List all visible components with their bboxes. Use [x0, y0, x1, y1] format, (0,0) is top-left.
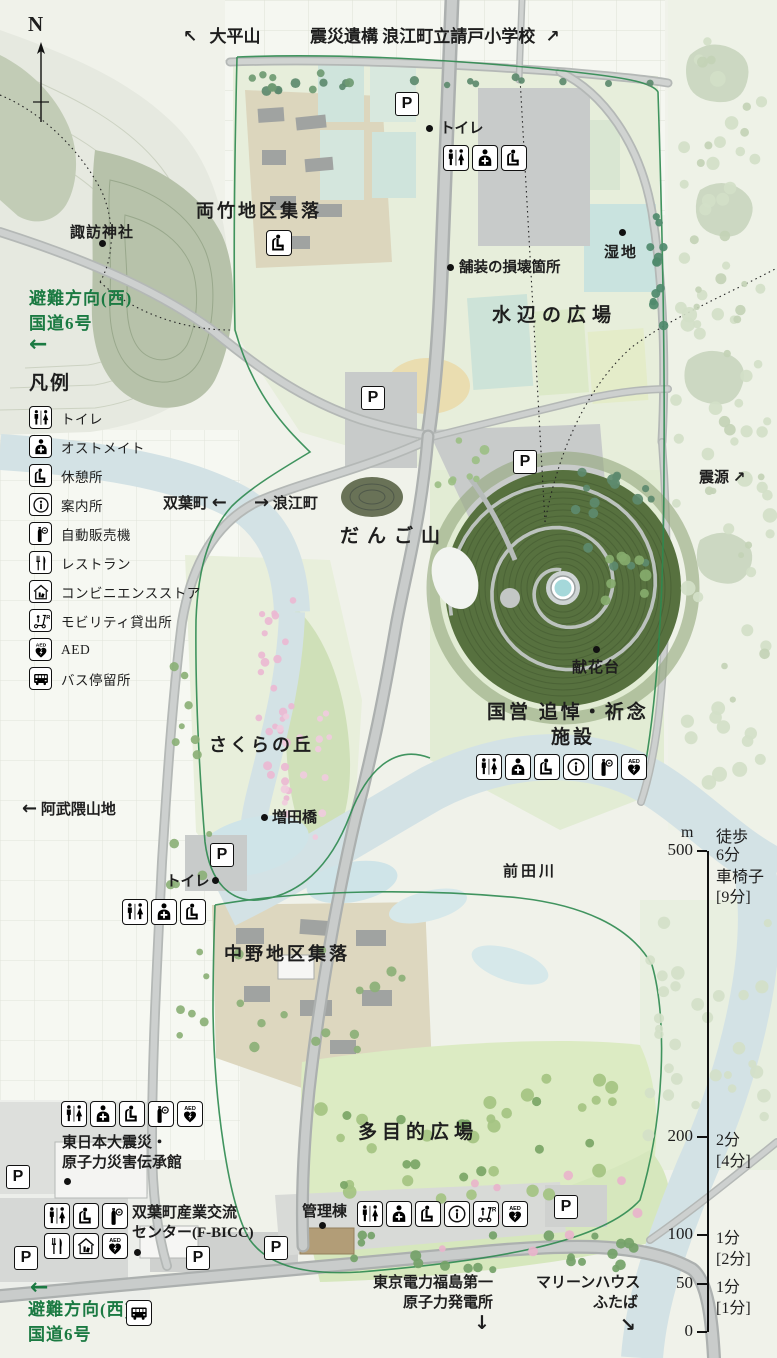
label-toilet-top: トイレ: [440, 117, 484, 138]
scale-tick: [697, 1283, 707, 1285]
ostomate-icon: [151, 899, 177, 925]
vending-icon: [29, 522, 52, 545]
parking-marker: P: [513, 450, 537, 474]
arrow-left-icon: ←: [212, 492, 227, 513]
label-pavement-damage: 舗装の損壊箇所: [459, 256, 561, 277]
legend: 凡例 トイレ オストメイト 休憩所 案内所 自動販売機 レストラン コンビニエン…: [29, 368, 201, 693]
bus-icon: [29, 667, 52, 690]
rest-icon: [534, 754, 560, 780]
evacuation-direction-top: 避難方向(西) 国道6号 ←: [29, 287, 132, 354]
legend-item-restaurant: レストラン: [29, 548, 201, 577]
aed-icon: [102, 1233, 128, 1259]
convenience-icon: [73, 1233, 99, 1259]
facility-icons-denshokan: [61, 1101, 203, 1127]
mobility-icon: [29, 609, 52, 632]
scale-wheelchair-200: [4分]: [716, 1147, 751, 1171]
restaurant-icon: [29, 551, 52, 574]
scale-axis: [707, 851, 709, 1332]
ostomate-icon: [386, 1201, 412, 1227]
label-suwa-shrine: 諏訪神社: [70, 221, 134, 242]
poi-dot-suwa: [99, 240, 106, 247]
scale-tick: [697, 1234, 707, 1236]
direction-epicenter: 震源 ↗: [699, 466, 745, 487]
parking-marker: P: [186, 1246, 210, 1270]
label-dango-yama: だんご山: [340, 521, 448, 548]
aed-icon: [621, 754, 647, 780]
legend-item-vending: 自動販売機: [29, 519, 201, 548]
parking-marker: P: [264, 1236, 288, 1260]
label-kanritou: 管理棟: [302, 1200, 347, 1221]
legend-item-aed: AED: [29, 635, 201, 664]
vending-icon: [148, 1101, 174, 1127]
facility-icons-fbicc-row2: [44, 1233, 128, 1259]
label-waterside-plaza: 水辺の広場: [492, 300, 617, 327]
poi-dot-denshokan: [64, 1178, 71, 1185]
toilet-icon: [357, 1201, 383, 1227]
arrow-left-icon: ←: [22, 798, 37, 819]
parking-marker: P: [554, 1195, 578, 1219]
direction-ohirayama: ↖ 大平山: [183, 22, 261, 47]
toilet-icon: [61, 1101, 87, 1127]
arrow-right-icon: →: [254, 492, 269, 513]
direction-futaba: 双葉町 ←: [163, 492, 227, 513]
ostomate-icon: [90, 1101, 116, 1127]
direction-tepco: 東京電力福島第一 原子力発電所: [368, 1273, 493, 1314]
poi-dot-fbicc: [134, 1249, 141, 1256]
ostomate-icon: [505, 754, 531, 780]
bus-stop-marker: [126, 1300, 152, 1326]
vending-icon: [102, 1203, 128, 1229]
rest-icon: [180, 899, 206, 925]
compass-label: N: [28, 12, 43, 37]
convenience-icon: [29, 580, 52, 603]
scale-value-0: 0: [653, 1321, 693, 1341]
scale-wheelchair-100: [2分]: [716, 1245, 751, 1269]
label-flower-stand: 献花台: [572, 656, 620, 677]
evacuation-direction-bottom: 避難方向(西) 国道6号: [28, 1298, 131, 1347]
rest-icon: [73, 1203, 99, 1229]
bus-icon: [126, 1300, 152, 1326]
arrow-down-right-icon: ↘: [620, 1314, 636, 1336]
arrow-left-icon: ←: [29, 336, 132, 354]
poi-dot-wetland: [619, 229, 626, 236]
scale-tick: [697, 1331, 707, 1333]
arrow-down-icon: ↓: [474, 1312, 490, 1334]
rest-icon: [266, 230, 292, 256]
label-toilet-mid: トイレ: [166, 870, 210, 891]
label-denshokan: 東日本大震災・ 原子力災害伝承館: [62, 1133, 182, 1174]
legend-item-bus: バス停留所: [29, 664, 201, 693]
legend-item-convenience: コンビニエンスストア: [29, 577, 201, 606]
toilet-icon: [122, 899, 148, 925]
scale-value-100: 100: [653, 1224, 693, 1244]
scale-wheelchair-50: [1分]: [716, 1294, 751, 1318]
park-map: N ↖ 大平山 震災遺構 浪江町立請戸小学校 ↗ 諏訪神社 避難方向(西) 国道…: [0, 0, 777, 1358]
legend-item-toilet: トイレ: [29, 403, 201, 432]
direction-ukedo-school: 震災遺構 浪江町立請戸小学校 ↗: [310, 22, 560, 47]
direction-marine-house: マリーンハウス ふたば: [536, 1273, 638, 1314]
label-national-memorial-line1: 国営 追悼・祈念: [487, 697, 649, 724]
legend-item-rest: 休憩所: [29, 461, 201, 490]
aed-icon: [29, 638, 52, 661]
scale-tick: [697, 1136, 707, 1138]
facility-icons-sakura: [122, 899, 206, 925]
scale-walk-500: 6分: [716, 841, 740, 865]
direction-namie: → 浪江町: [254, 492, 318, 513]
label-nakano-village: 中野地区集落: [224, 940, 350, 966]
info-icon: [563, 754, 589, 780]
facility-icons-kanri: [357, 1201, 528, 1227]
aed-icon: [177, 1101, 203, 1127]
scale-value-50: 50: [653, 1273, 693, 1293]
ostomate-icon: [472, 145, 498, 171]
toilet-icon: [29, 406, 52, 429]
label-fbicc: 双葉町産業交流 センター(F-BICC): [132, 1203, 254, 1244]
label-maeda-river: 前田川: [503, 860, 557, 881]
legend-item-ostomate: オストメイト: [29, 432, 201, 461]
poi-dot-pavement: [447, 264, 454, 271]
scale-value-200: 200: [653, 1126, 693, 1146]
label-sakura-hill: さくらの丘: [209, 731, 314, 757]
parking-marker: P: [6, 1165, 30, 1189]
rest-icon: [415, 1201, 441, 1227]
poi-dot-toilet-mid: [212, 877, 219, 884]
arrow-left-icon: ←: [30, 1278, 49, 1298]
facility-icons-fbicc-row1: [44, 1203, 128, 1229]
label-wetland: 湿地: [604, 241, 638, 262]
label-ryotake-village: 両竹地区集落: [196, 197, 322, 223]
toilet-icon: [443, 145, 469, 171]
scale-tick: [697, 850, 707, 852]
rest-icon: [29, 464, 52, 487]
arrow-up-right-icon: ↗: [733, 468, 746, 486]
vending-icon: [592, 754, 618, 780]
poi-dot-kenkadai: [593, 646, 600, 653]
parking-marker: P: [361, 386, 385, 410]
scale-wheelchair-500: [9分]: [716, 883, 751, 907]
label-masuda-bridge: 増田橋: [272, 806, 317, 827]
legend-item-mobility: モビリティ貸出所: [29, 606, 201, 635]
facility-icons-memorial: [476, 754, 647, 780]
arrow-up-right-icon: ↗: [546, 27, 560, 47]
legend-title: 凡例: [29, 368, 201, 395]
ostomate-icon: [29, 435, 52, 458]
rest-icon: [501, 145, 527, 171]
parking-marker: P: [395, 92, 419, 116]
poi-dot-masuda-bridge: [261, 814, 268, 821]
poi-dot-toilet-top: [426, 125, 433, 132]
direction-abukuma: ← 阿武隈山地: [22, 798, 116, 819]
rest-icon: [119, 1101, 145, 1127]
parking-marker: P: [210, 843, 234, 867]
label-national-memorial-line2: 施設: [551, 722, 595, 749]
rest-area-marker-ryotake: [266, 230, 292, 256]
compass-needle-icon: [30, 40, 52, 125]
parking-marker: P: [14, 1246, 38, 1270]
poi-dot-kanritou: [319, 1222, 326, 1229]
toilet-icon: [44, 1203, 70, 1229]
info-icon: [29, 493, 52, 516]
info-icon: [444, 1201, 470, 1227]
arrow-up-left-icon: ↖: [183, 27, 197, 47]
facility-icons-top: [443, 145, 527, 171]
mobility-icon: [473, 1201, 499, 1227]
restaurant-icon: [44, 1233, 70, 1259]
label-multipurpose-plaza: 多目的広場: [358, 1117, 478, 1144]
toilet-icon: [476, 754, 502, 780]
scale-value-500: 500: [653, 840, 693, 860]
aed-icon: [502, 1201, 528, 1227]
